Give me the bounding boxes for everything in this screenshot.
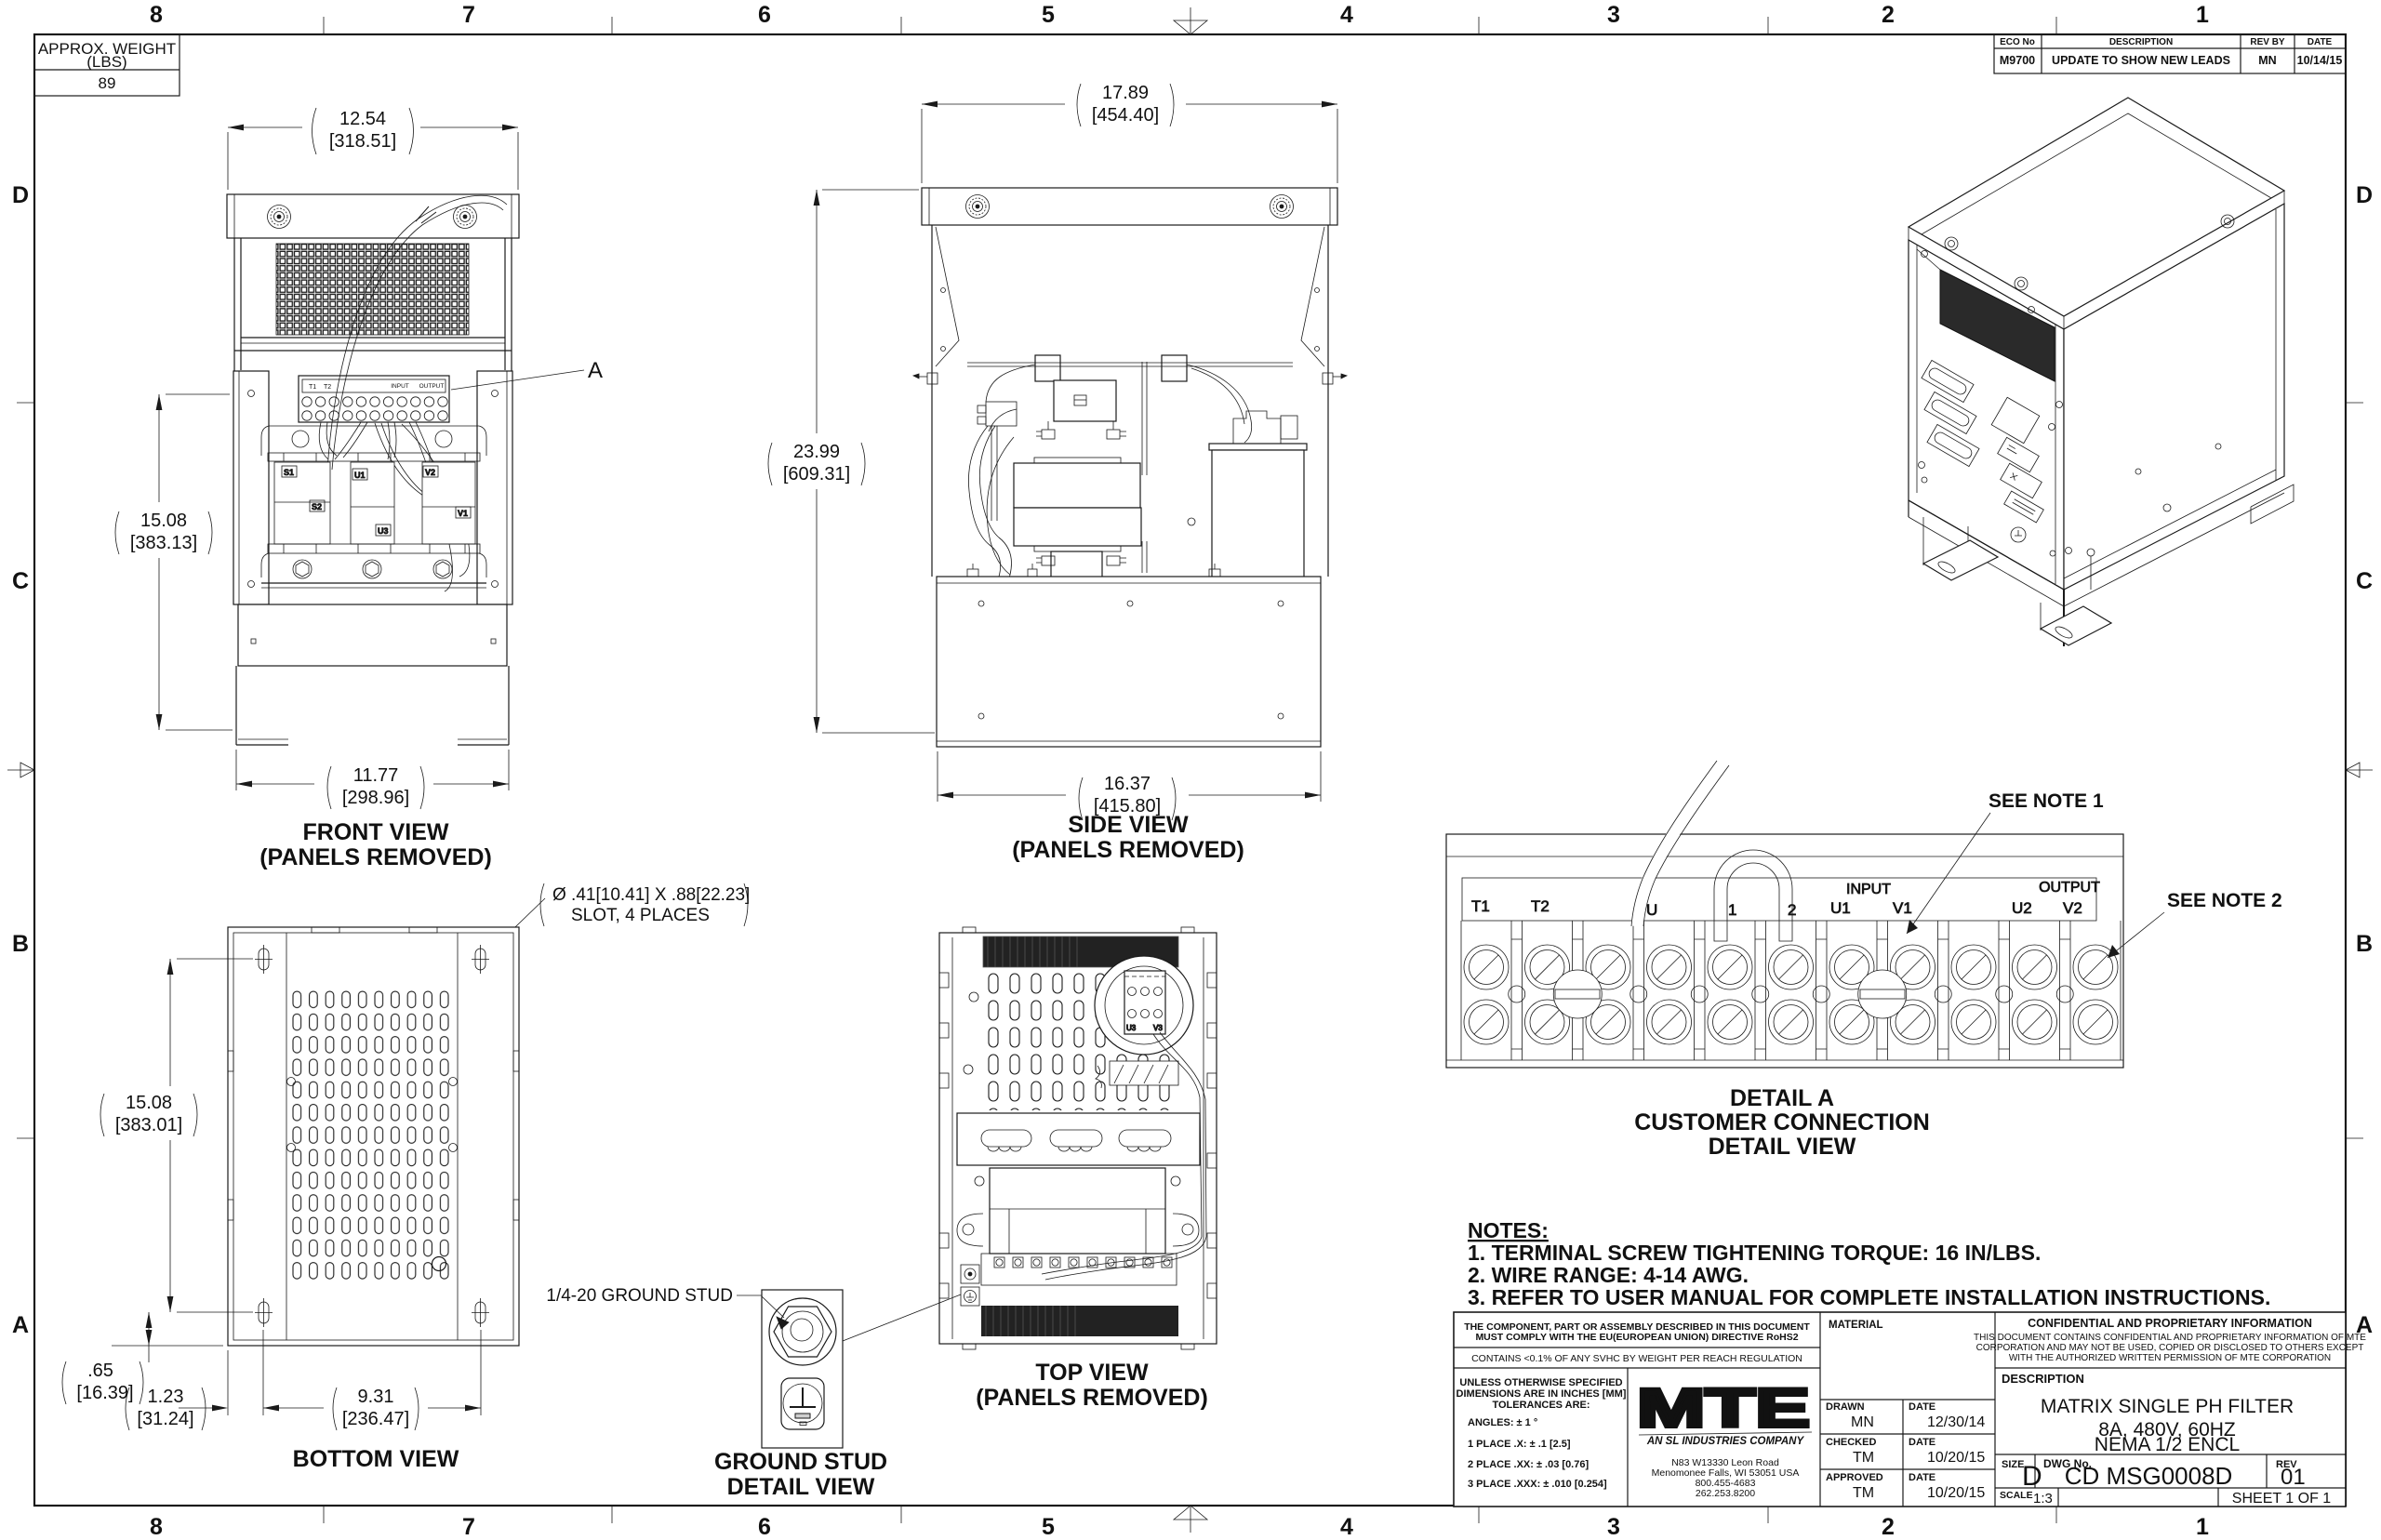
svg-text:17.89: 17.89	[1102, 83, 1149, 103]
svg-text:DETAIL A: DETAIL A	[1730, 1085, 1834, 1111]
svg-text:DATE: DATE	[1909, 1401, 1935, 1413]
svg-text:INPUT: INPUT	[1846, 882, 1891, 897]
svg-text:23.99: 23.99	[793, 442, 840, 462]
svg-text:T1: T1	[1471, 897, 1490, 915]
svg-text:[383.13]: [383.13]	[130, 533, 197, 553]
svg-text:5: 5	[1042, 2, 1055, 28]
svg-text:T1: T1	[309, 384, 316, 391]
svg-text:APPROVED: APPROVED	[1826, 1472, 1883, 1483]
svg-text:DATE: DATE	[1909, 1472, 1935, 1483]
svg-text:1/4-20 GROUND STUD: 1/4-20 GROUND STUD	[546, 1286, 733, 1306]
svg-text:ECO No: ECO No	[2000, 37, 2035, 47]
svg-text:U1: U1	[1830, 899, 1851, 917]
svg-text:[16.39]: [16.39]	[76, 1383, 133, 1403]
svg-text:[236.47]: [236.47]	[342, 1409, 409, 1429]
svg-text:2: 2	[1882, 1514, 1895, 1540]
svg-text:GROUND STUD: GROUND STUD	[714, 1449, 887, 1475]
svg-text:S2: S2	[312, 502, 322, 511]
svg-text:U3: U3	[378, 526, 389, 536]
svg-text:Ø .41[10.41] X .88[22.23]: Ø .41[10.41] X .88[22.23]	[552, 885, 750, 905]
svg-text:ANGLES: ± 1 °: ANGLES: ± 1 °	[1468, 1417, 1537, 1428]
svg-text:TOLERANCES ARE:: TOLERANCES ARE:	[1492, 1400, 1590, 1411]
svg-text:A: A	[588, 358, 603, 383]
svg-text:3: 3	[1607, 2, 1620, 28]
svg-text:2: 2	[1882, 2, 1895, 28]
svg-text:(PANELS REMOVED): (PANELS REMOVED)	[259, 844, 492, 870]
svg-text:2 PLACE .XX: ± .03 [0.76]: 2 PLACE .XX: ± .03 [0.76]	[1468, 1459, 1589, 1470]
svg-text:7: 7	[462, 2, 475, 28]
svg-text:INPUT: INPUT	[391, 383, 409, 390]
svg-text:[609.31]: [609.31]	[783, 464, 850, 485]
svg-text:DESCRIPTION: DESCRIPTION	[2002, 1372, 2084, 1386]
svg-text:SHEET 1 OF 1: SHEET 1 OF 1	[2232, 1491, 2332, 1507]
svg-text:10/14/15: 10/14/15	[2297, 54, 2343, 67]
svg-text:16.37: 16.37	[1104, 774, 1151, 794]
svg-text:SLOT, 4 PLACES: SLOT, 4 PLACES	[571, 906, 710, 925]
svg-text:T2: T2	[1531, 897, 1550, 915]
svg-text:DESCRIPTION: DESCRIPTION	[2109, 37, 2173, 47]
svg-text:10/20/15: 10/20/15	[1927, 1485, 1985, 1501]
svg-text:(LBS): (LBS)	[86, 53, 126, 71]
svg-text:A: A	[12, 1312, 29, 1338]
svg-text:THIS DOCUMENT CONTAINS CONFIDE: THIS DOCUMENT CONTAINS CONFIDENTIAL AND …	[1974, 1333, 2366, 1343]
svg-text:.65: .65	[87, 1361, 113, 1381]
svg-text:11.77: 11.77	[353, 765, 399, 786]
svg-text:1 PLACE .X: ± .1 [2.5]: 1 PLACE .X: ± .1 [2.5]	[1468, 1439, 1571, 1450]
svg-text:AN SL INDUSTRIES COMPANY: AN SL INDUSTRIES COMPANY	[1646, 1436, 1805, 1447]
svg-text:TOP VIEW: TOP VIEW	[1035, 1360, 1149, 1386]
svg-text:01: 01	[2281, 1465, 2306, 1490]
svg-text:1:3: 1:3	[2033, 1491, 2053, 1507]
svg-text:B: B	[12, 931, 29, 957]
svg-text:262.253.8200: 262.253.8200	[1696, 1488, 1755, 1499]
svg-text:MN: MN	[2258, 54, 2276, 67]
svg-text:OUTPUT: OUTPUT	[419, 383, 445, 390]
svg-text:WITH THE AUTHORIZED WRITTEN PE: WITH THE AUTHORIZED WRITTEN PERMISSION O…	[2009, 1353, 2331, 1363]
svg-text:1: 1	[2196, 2, 2209, 28]
svg-text:CHECKED: CHECKED	[1826, 1437, 1876, 1448]
svg-text:4: 4	[1340, 2, 1353, 28]
svg-text:12.54: 12.54	[339, 109, 386, 129]
svg-text:V1: V1	[458, 509, 468, 518]
svg-text:V2: V2	[2063, 899, 2082, 917]
svg-text:U3: U3	[1126, 1024, 1137, 1032]
svg-text:U2: U2	[2012, 899, 2032, 917]
svg-text:1.23: 1.23	[148, 1387, 184, 1407]
svg-text:12/30/14: 12/30/14	[1927, 1414, 1985, 1430]
svg-text:SEE NOTE 2: SEE NOTE 2	[2167, 890, 2282, 911]
svg-text:DATE: DATE	[1909, 1437, 1935, 1448]
svg-text:CONFIDENTIAL AND PROPRIETARY I: CONFIDENTIAL AND PROPRIETARY INFORMATION	[2028, 1317, 2312, 1330]
svg-text:1. TERMINAL SCREW TIGHTENING: 1. TERMINAL SCREW TIGHTENING TORQUE: 16 …	[1468, 1241, 2041, 1265]
svg-text:89: 89	[99, 74, 116, 92]
svg-text:FRONT VIEW: FRONT VIEW	[303, 819, 449, 845]
svg-text:4: 4	[1340, 1514, 1353, 1540]
svg-text:NOTES:: NOTES:	[1468, 1218, 1549, 1242]
svg-text:B: B	[2356, 931, 2373, 957]
svg-text:CORPORATION AND MAY NOT BE USE: CORPORATION AND MAY NOT BE USED, COPIED …	[1976, 1343, 2364, 1353]
svg-text:[31.24]: [31.24]	[137, 1409, 193, 1429]
svg-text:V1: V1	[1893, 899, 1912, 917]
svg-text:D: D	[12, 182, 29, 208]
svg-text:6: 6	[758, 1514, 771, 1540]
svg-text:SIZE: SIZE	[2002, 1459, 2024, 1470]
svg-text:6: 6	[758, 2, 771, 28]
svg-text:2. WIRE RANGE: 4-14 AWG.: 2. WIRE RANGE: 4-14 AWG.	[1468, 1263, 1749, 1287]
svg-text:15.08: 15.08	[126, 1093, 172, 1113]
svg-text:CD MSG0008D: CD MSG0008D	[2065, 1462, 2233, 1490]
svg-text:8: 8	[150, 2, 163, 28]
svg-text:MATERIAL: MATERIAL	[1829, 1320, 1883, 1331]
svg-text:DIMENSIONS ARE IN INCHES [MM]: DIMENSIONS ARE IN INCHES [MM]	[1457, 1388, 1627, 1400]
svg-text:M9700: M9700	[2000, 54, 2035, 67]
svg-text:8: 8	[150, 1514, 163, 1540]
svg-text:(PANELS REMOVED): (PANELS REMOVED)	[976, 1385, 1208, 1411]
svg-text:NEMA 1/2 ENCL: NEMA 1/2 ENCL	[2095, 1434, 2240, 1455]
svg-text:SIDE VIEW: SIDE VIEW	[1068, 812, 1189, 838]
svg-text:[383.01]: [383.01]	[115, 1115, 182, 1135]
svg-text:T2: T2	[324, 384, 331, 391]
svg-text:SCALE: SCALE	[2000, 1490, 2033, 1501]
svg-text:MTE: MTE	[1637, 1378, 1810, 1439]
svg-text:3: 3	[1607, 1514, 1620, 1540]
svg-text:9.31: 9.31	[358, 1387, 394, 1407]
svg-text:3 PLACE .XXX: ± .010 [0.254]: 3 PLACE .XXX: ± .010 [0.254]	[1468, 1479, 1607, 1490]
svg-text:DATE: DATE	[2308, 37, 2333, 47]
svg-text:MUST COMPLY WITH THE EU(EUROPE: MUST COMPLY WITH THE EU(EUROPEAN UNION) …	[1475, 1332, 1798, 1343]
svg-text:1: 1	[2196, 1514, 2209, 1540]
svg-text:TM: TM	[1853, 1485, 1874, 1501]
svg-text:[298.96]: [298.96]	[342, 788, 409, 808]
svg-text:[454.40]: [454.40]	[1092, 105, 1159, 126]
svg-text:1: 1	[1728, 901, 1736, 919]
svg-text:5: 5	[1042, 1514, 1055, 1540]
svg-text:[318.51]: [318.51]	[329, 131, 396, 152]
svg-text:CONTAINS <0.1% OF ANY SVHC BY: CONTAINS <0.1% OF ANY SVHC BY WEIGHT PER…	[1471, 1353, 1802, 1364]
svg-text:S1: S1	[284, 468, 294, 477]
svg-text:D: D	[2356, 182, 2373, 208]
svg-text:C: C	[12, 568, 29, 594]
svg-text:DETAIL VIEW: DETAIL VIEW	[727, 1474, 875, 1500]
svg-text:3. REFER TO USER MANUAL FOR C: 3. REFER TO USER MANUAL FOR COMPLETE INS…	[1468, 1285, 2270, 1309]
svg-text:10/20/15: 10/20/15	[1927, 1450, 1985, 1466]
svg-text:MATRIX SINGLE PH FILTER: MATRIX SINGLE PH FILTER	[2041, 1396, 2294, 1417]
svg-text:SEE NOTE 1: SEE NOTE 1	[1989, 790, 2104, 812]
svg-text:V3: V3	[1153, 1024, 1163, 1032]
svg-text:DETAIL VIEW: DETAIL VIEW	[1709, 1134, 1856, 1160]
svg-text:DRAWN: DRAWN	[1826, 1401, 1865, 1413]
svg-text:C: C	[2356, 568, 2373, 594]
svg-text:UPDATE TO SHOW NEW LEADS: UPDATE TO SHOW NEW LEADS	[2052, 54, 2230, 67]
svg-text:U1: U1	[354, 471, 366, 480]
svg-text:7: 7	[462, 1514, 475, 1540]
svg-text:BOTTOM VIEW: BOTTOM VIEW	[293, 1446, 459, 1472]
svg-text:V2: V2	[425, 468, 435, 477]
svg-text:UNLESS OTHERWISE SPECIFIED: UNLESS OTHERWISE SPECIFIED	[1459, 1377, 1622, 1388]
svg-text:(PANELS REMOVED): (PANELS REMOVED)	[1012, 837, 1244, 863]
svg-text:U: U	[1646, 901, 1657, 919]
svg-text:REV BY: REV BY	[2250, 37, 2285, 47]
svg-text:CUSTOMER CONNECTION: CUSTOMER CONNECTION	[1634, 1109, 1930, 1135]
svg-text:MN: MN	[1851, 1414, 1874, 1430]
svg-text:15.08: 15.08	[140, 511, 187, 531]
svg-text:D: D	[2022, 1461, 2042, 1492]
svg-text:TM: TM	[1853, 1450, 1874, 1466]
svg-text:OUTPUT: OUTPUT	[2039, 880, 2100, 896]
